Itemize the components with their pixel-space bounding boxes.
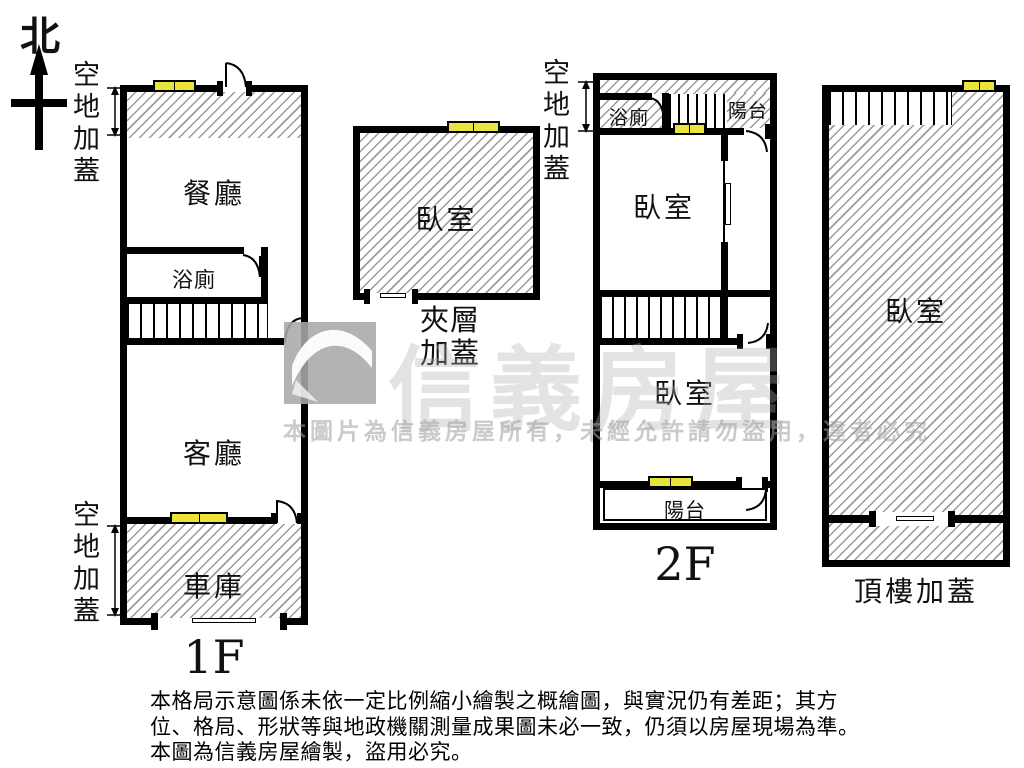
door-opening (740, 481, 764, 488)
room-label-bedroom-mezzanine: 臥室 (360, 198, 533, 238)
room-label-balcony-bottom: 陽台 (640, 494, 730, 523)
door-jamb (280, 613, 287, 630)
garage-door (192, 618, 256, 623)
floor-label-rooftop: 頂樓加蓋 (822, 570, 1010, 610)
room-label-living: 客廳 (127, 432, 301, 472)
dimension-ticks (578, 82, 594, 131)
open-area-annotation-top-1f: 空地加蓋 (70, 60, 97, 192)
door-panel (380, 293, 406, 298)
window (648, 476, 693, 488)
door-jamb (765, 124, 771, 139)
wall (600, 128, 744, 135)
door-jamb (151, 613, 158, 630)
window (447, 121, 500, 133)
door-opening (275, 517, 299, 524)
door-jamb (364, 289, 370, 304)
disclaimer-line-3: 本圖為信義房屋繪製，盜用必究。 (150, 740, 890, 766)
disclaimer: 本格局示意圖係未依一定比例縮小繪製之概繪圖，與實況仍有差距；其方 位、格局、形狀… (150, 689, 890, 766)
wall (127, 297, 268, 304)
room-label-bedroom-rooftop: 臥室 (829, 290, 1003, 330)
room-label-dining: 餐廳 (127, 172, 301, 212)
door-jamb (412, 289, 418, 304)
room-label-bath-1f: 浴廁 (127, 264, 261, 294)
window (962, 80, 996, 92)
disclaimer-line-2: 位、格局、形狀等與地政機關測量成果圖未必一致，仍須以房屋現場為準。 (150, 715, 890, 741)
wall (261, 247, 268, 304)
floor-label-2f: 2F (593, 537, 777, 591)
room-label-balcony-top: 陽台 (724, 96, 772, 123)
wall (127, 247, 244, 254)
open-area-annotation-bottom-1f: 空地加蓋 (70, 500, 97, 632)
room-label-bath-2f: 浴廁 (598, 103, 660, 130)
dimension-arrowheads (111, 524, 119, 617)
wall (721, 242, 728, 297)
door-jamb (869, 511, 876, 527)
wall (829, 515, 874, 523)
window (170, 512, 228, 524)
dimension-arrowheads (582, 80, 590, 133)
staircase-2f-mid (600, 297, 721, 338)
window (673, 123, 706, 135)
wall (600, 290, 770, 297)
wall (950, 515, 1003, 523)
compass-north-label: 北 (20, 4, 60, 62)
door-jamb (737, 334, 743, 349)
door-opening (222, 85, 248, 92)
staircase-rooftop (829, 92, 952, 125)
room-label-garage: 車庫 (127, 565, 301, 605)
dimension-arrowheads (111, 86, 119, 137)
wall (127, 338, 284, 345)
open-area-annotation-2f: 空地加蓋 (540, 58, 567, 194)
staircase-1f (127, 304, 268, 338)
room-label-bedroom-front: 臥室 (600, 186, 728, 226)
door-jamb (948, 511, 955, 527)
door-arc (226, 63, 246, 87)
wall (721, 135, 728, 161)
window (153, 80, 196, 92)
room-label-bedroom-back: 臥室 (600, 372, 770, 412)
disclaimer-line-1: 本格局示意圖係未依一定比例縮小繪製之概繪圖，與實況仍有差距；其方 (150, 689, 890, 715)
wall (600, 338, 741, 345)
door-panel (896, 516, 934, 521)
floor-label-1f: 1F (120, 630, 308, 684)
wall (600, 93, 652, 100)
door-jamb (766, 334, 772, 349)
covered-open-area-top-1f (127, 92, 301, 138)
covered-open-area-2f (600, 80, 770, 94)
floor-label-mezzanine: 夾層加蓋 (416, 304, 484, 371)
door-jamb (217, 81, 223, 96)
door-jamb (246, 81, 252, 96)
sliding-window-panel (725, 183, 731, 225)
floorplan-canvas: 北 空地加蓋 空地加蓋 餐廳 浴廁 客廳 車庫 (0, 0, 1024, 768)
